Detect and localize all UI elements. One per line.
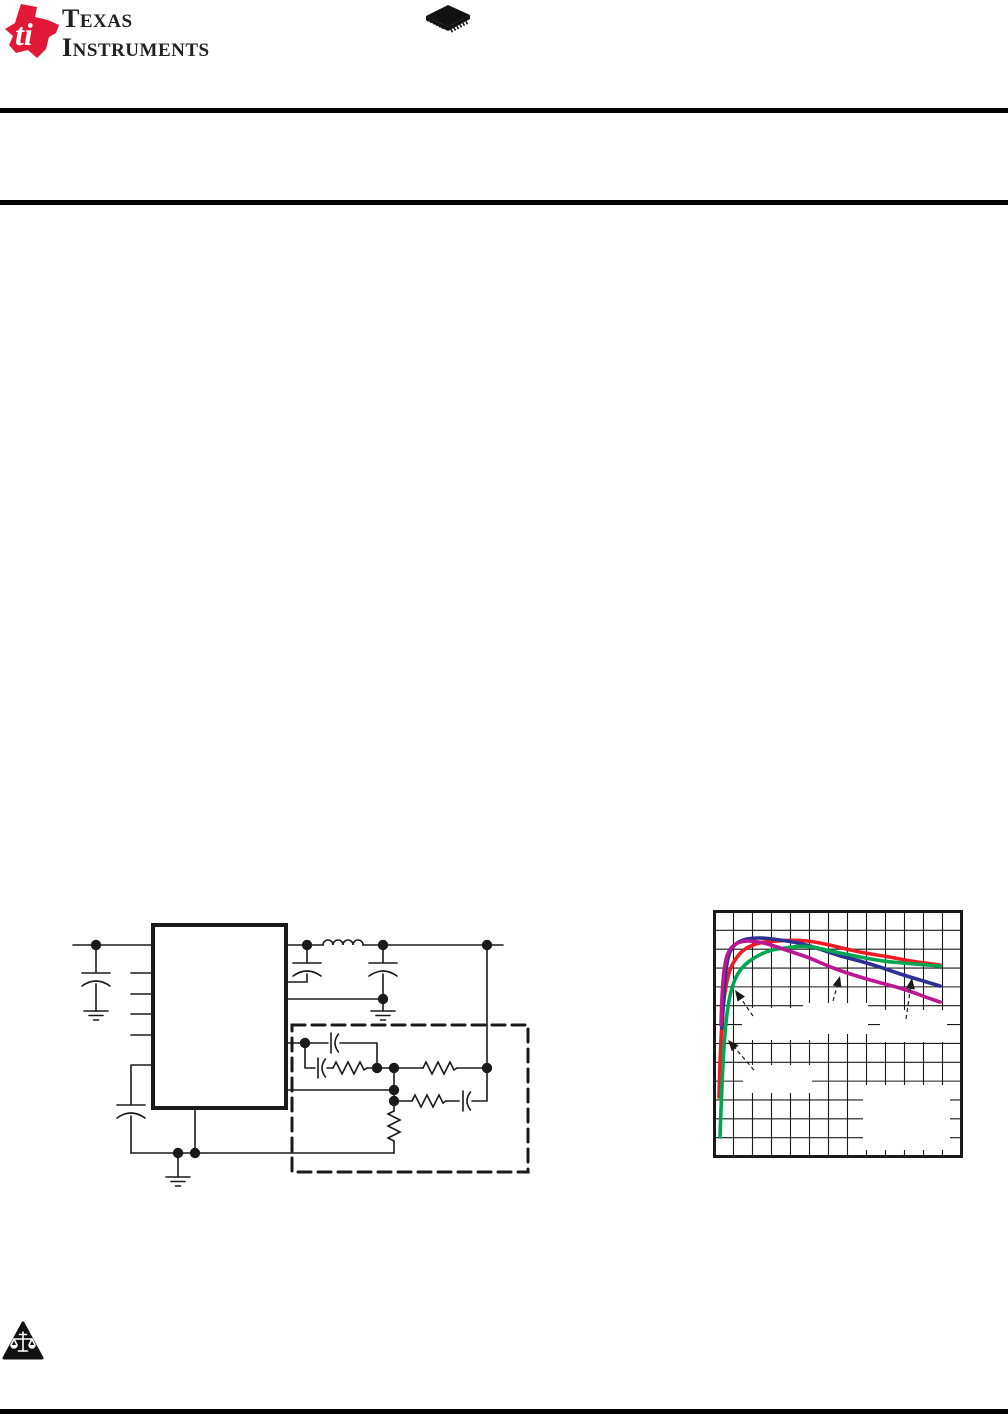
ground-icon <box>371 1011 395 1020</box>
brand-line-1: TEXAS <box>62 6 210 32</box>
footer-rule <box>0 1409 1008 1414</box>
ti-monogram: ti <box>15 16 33 52</box>
feedback-divider-bottom-resistor <box>388 1101 400 1153</box>
datasheet-page: ti TEXAS INSTRUMENTS <box>0 0 1008 1414</box>
ground-icon <box>84 1011 108 1020</box>
header-rule-top <box>0 108 1008 113</box>
feedback-divider-top-resistor <box>423 1062 487 1074</box>
label-placeholder <box>742 1008 812 1040</box>
qfn-package-icon <box>424 3 472 37</box>
resistor <box>412 1095 446 1107</box>
compensation-dashed-box <box>292 1025 528 1172</box>
legal-scales-triangle-icon <box>2 1320 48 1364</box>
feedforward-rc-branch <box>286 1068 487 1111</box>
ground-icon <box>166 1177 190 1186</box>
ic-block <box>153 925 286 1108</box>
bottom-ground-net <box>131 1108 394 1186</box>
typical-application-schematic <box>60 915 540 1200</box>
ti-texas-logo-icon: ti <box>3 2 61 60</box>
header-rule-bottom <box>0 200 1008 205</box>
arrowhead-series-red <box>735 990 745 1002</box>
resistor <box>388 1111 400 1141</box>
comp-top-capacitor <box>286 1033 377 1068</box>
brand-wordmark: TEXAS INSTRUMENTS <box>62 6 210 61</box>
chart-label-placeholders <box>742 1003 950 1150</box>
ic-left-pin-stubs <box>131 973 153 1035</box>
label-placeholder <box>863 1085 950 1150</box>
label-placeholder <box>803 1003 868 1034</box>
switch-node-capacitor <box>286 945 321 982</box>
brand-line-2: INSTRUMENTS <box>62 35 210 61</box>
efficiency-chart <box>713 910 963 1158</box>
arrowhead-series-magenta <box>833 976 842 988</box>
resistor <box>423 1062 457 1074</box>
label-placeholder <box>880 1010 947 1042</box>
input-capacitor <box>82 945 110 1020</box>
comp-rc-branch <box>305 1043 423 1078</box>
bypass-capacitor <box>117 1065 153 1153</box>
output-inductor <box>323 940 363 945</box>
resistor <box>333 1062 367 1074</box>
